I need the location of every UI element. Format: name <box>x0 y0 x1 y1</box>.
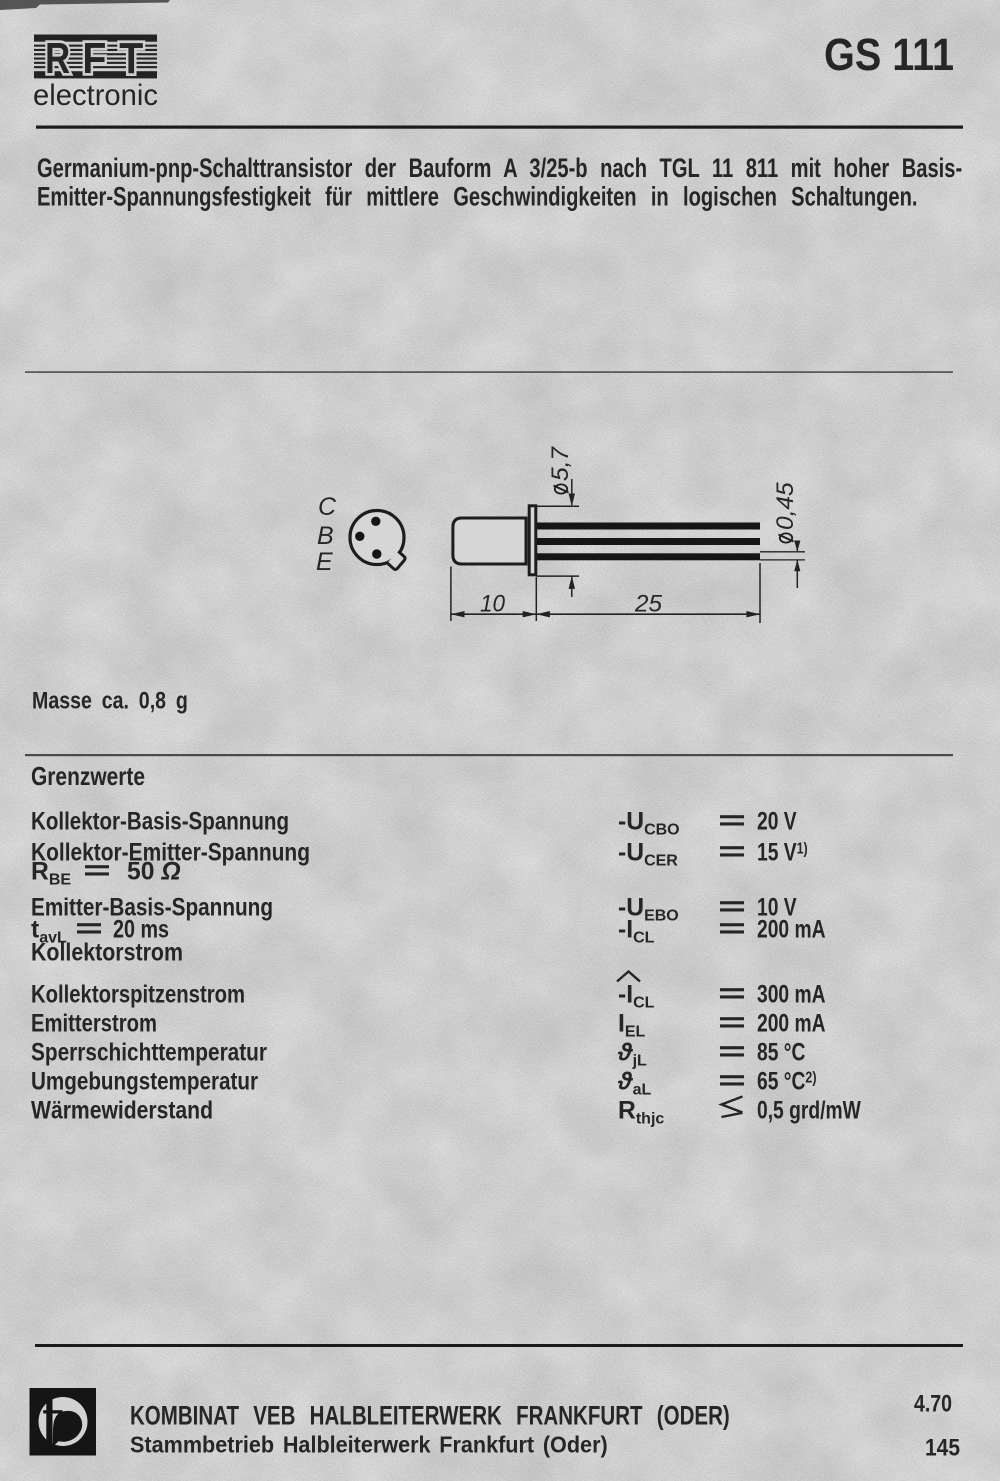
svg-text:B: B <box>317 522 334 550</box>
svg-text:Stammbetrieb Halbleiterwerk Fr: Stammbetrieb Halbleiterwerk Frankfurt (O… <box>130 1432 608 1458</box>
svg-text:Umgebungstemperatur: Umgebungstemperatur <box>31 1069 258 1096</box>
svg-text:5,7: 5,7 <box>547 446 574 481</box>
svg-text:25: 25 <box>634 591 662 618</box>
svg-text:200 mA: 200 mA <box>757 1009 826 1037</box>
svg-text:50 Ω: 50 Ω <box>127 859 181 886</box>
svg-text:200 mA: 200 mA <box>757 915 826 943</box>
svg-text:10: 10 <box>480 591 505 618</box>
svg-text:300 mA: 300 mA <box>757 980 826 1008</box>
svg-text:Emitter-Spannungsfestigkeit fü: Emitter-Spannungsfestigkeit für mittlere… <box>37 182 918 211</box>
svg-text:Sperrschichttemperatur: Sperrschichttemperatur <box>31 1040 267 1067</box>
svg-text:GS 111: GS 111 <box>824 29 954 80</box>
svg-text:R: R <box>45 34 70 83</box>
svg-text:electronic: electronic <box>33 79 158 112</box>
svg-text:Emitterstrom: Emitterstrom <box>31 1011 157 1038</box>
svg-text:Wärmewiderstand: Wärmewiderstand <box>31 1098 213 1125</box>
svg-text:T: T <box>119 34 143 83</box>
svg-text:145: 145 <box>925 1435 960 1462</box>
svg-text:Kollektorstrom: Kollektorstrom <box>31 940 183 967</box>
svg-text:Kollektorspitzenstrom: Kollektorspitzenstrom <box>31 982 245 1009</box>
svg-text:Masse ca. 0,8 g: Masse ca. 0,8 g <box>32 686 188 714</box>
svg-text:85 °C: 85 °C <box>757 1038 805 1066</box>
svg-text:4.70: 4.70 <box>914 1391 952 1418</box>
svg-text:C: C <box>318 493 337 521</box>
svg-text:0,45: 0,45 <box>772 482 799 530</box>
svg-text:0,5 grd/mW: 0,5 grd/mW <box>757 1096 861 1124</box>
svg-text:Grenzwerte: Grenzwerte <box>31 763 145 791</box>
svg-text:F: F <box>82 34 106 83</box>
svg-text:Kollektor-Basis-Spannung: Kollektor-Basis-Spannung <box>31 809 289 836</box>
svg-text:KOMBINAT VEB HALBLEITERWERK FR: KOMBINAT VEB HALBLEITERWERK FRANKFURT (O… <box>130 1401 730 1431</box>
svg-text:20 V: 20 V <box>757 807 797 835</box>
svg-text:E: E <box>316 548 333 576</box>
svg-text:Germanium-pnp-Schalttransistor: Germanium-pnp-Schalttransistor der Baufo… <box>37 153 962 182</box>
